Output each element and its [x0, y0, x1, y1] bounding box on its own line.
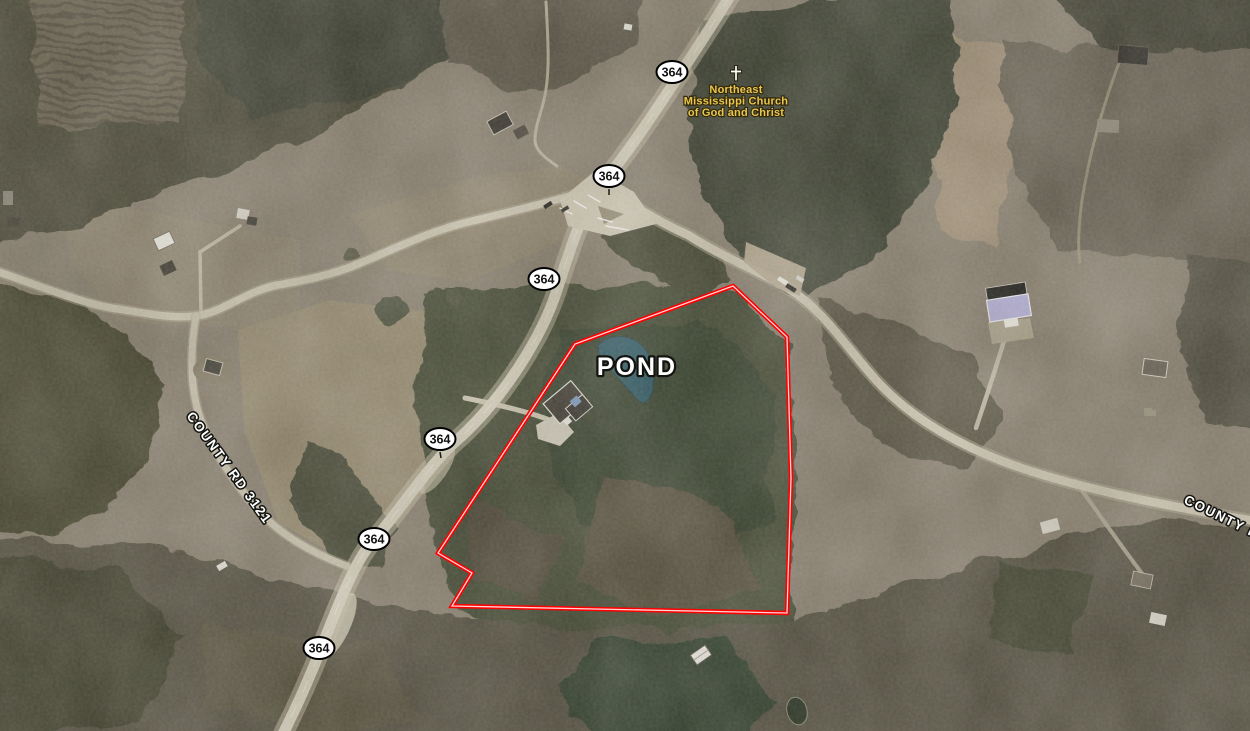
svg-text:364: 364 [309, 642, 330, 656]
church-label-line2: Mississippi Church [684, 96, 789, 108]
route-shield-364: 364 [425, 428, 456, 450]
church-label-line3: of God and Christ [688, 107, 784, 119]
svg-text:364: 364 [364, 533, 385, 547]
route-shield-364: 364 [304, 637, 335, 659]
route-shield-364: 364 [594, 165, 625, 187]
pond-label: POND [597, 353, 677, 381]
svg-text:364: 364 [534, 273, 555, 287]
aerial-property-map: 364364364364364364 POND Northeast Missis… [0, 0, 1250, 731]
route-shield-364: 364 [529, 268, 560, 290]
church-label-line1: Northeast [709, 84, 762, 96]
route-shield-364: 364 [359, 528, 390, 550]
svg-text:364: 364 [662, 66, 683, 80]
route-shield-364: 364 [657, 61, 688, 83]
svg-text:364: 364 [430, 433, 451, 447]
svg-text:364: 364 [599, 170, 620, 184]
satellite-map-canvas: 364364364364364364 POND Northeast Missis… [0, 0, 1250, 731]
